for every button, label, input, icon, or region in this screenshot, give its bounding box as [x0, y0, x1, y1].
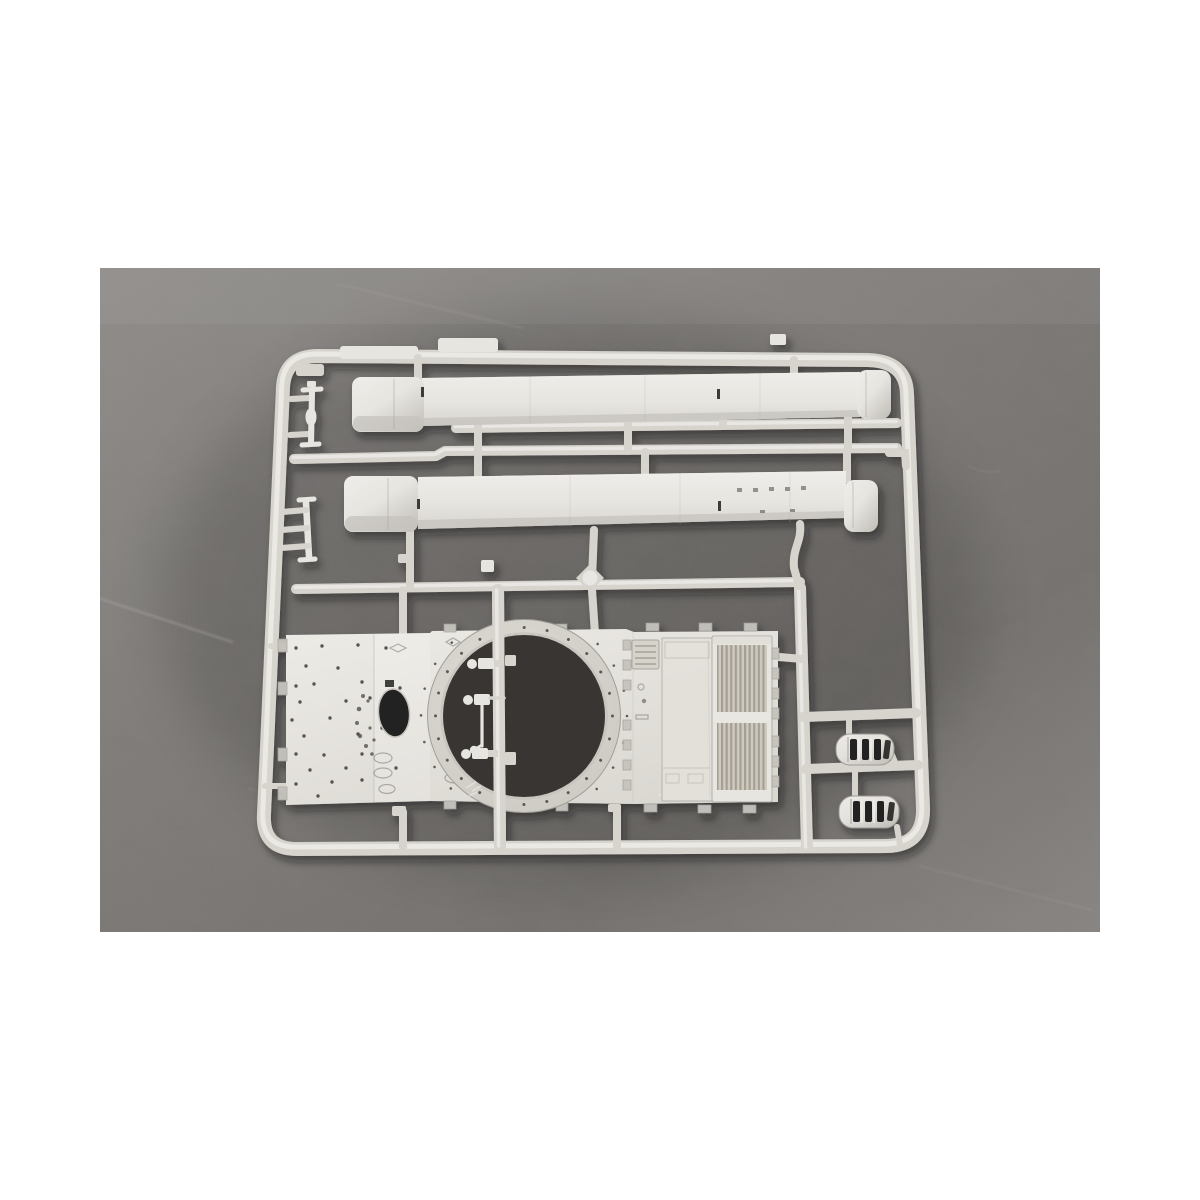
grille-slats-bottom — [717, 723, 767, 790]
felt-background — [100, 268, 1100, 932]
slot-mark — [421, 387, 424, 397]
deck-right-hinges — [772, 648, 779, 787]
exhaust-muffler-lower — [839, 796, 899, 828]
grille-slats-top — [717, 645, 767, 713]
sprue-photo — [100, 268, 1100, 932]
frame-ledge — [296, 364, 324, 376]
skirt-block-lip — [345, 516, 417, 531]
frame-pad — [340, 346, 418, 359]
skirt-block-lip — [353, 416, 423, 431]
small-opening — [385, 680, 394, 687]
runner-pad — [481, 560, 494, 572]
deck-mid-panel — [662, 638, 712, 801]
page: { "meta": { "type": "product-photograph"… — [0, 0, 1200, 1200]
exhaust-muffler-upper — [836, 734, 894, 765]
runner-bar — [806, 765, 918, 769]
sprue-photo-svg — [100, 268, 1100, 932]
skirt-end-cap — [857, 370, 891, 419]
deck-small-grille — [632, 640, 659, 669]
frame-stub — [770, 334, 786, 345]
felt-grain — [100, 268, 1100, 932]
slot-mark — [718, 501, 721, 511]
slot-mark — [417, 499, 420, 509]
slot-mark — [717, 389, 720, 399]
deck-intake-grille — [712, 636, 772, 802]
ring-cross-bar-highlight — [497, 590, 499, 846]
light-band — [100, 268, 1100, 324]
ring-hole — [443, 635, 605, 797]
frame-pad — [438, 338, 498, 352]
skirt-end-cap — [844, 480, 878, 532]
grille-divider — [713, 712, 771, 722]
runner-bar — [803, 713, 916, 717]
